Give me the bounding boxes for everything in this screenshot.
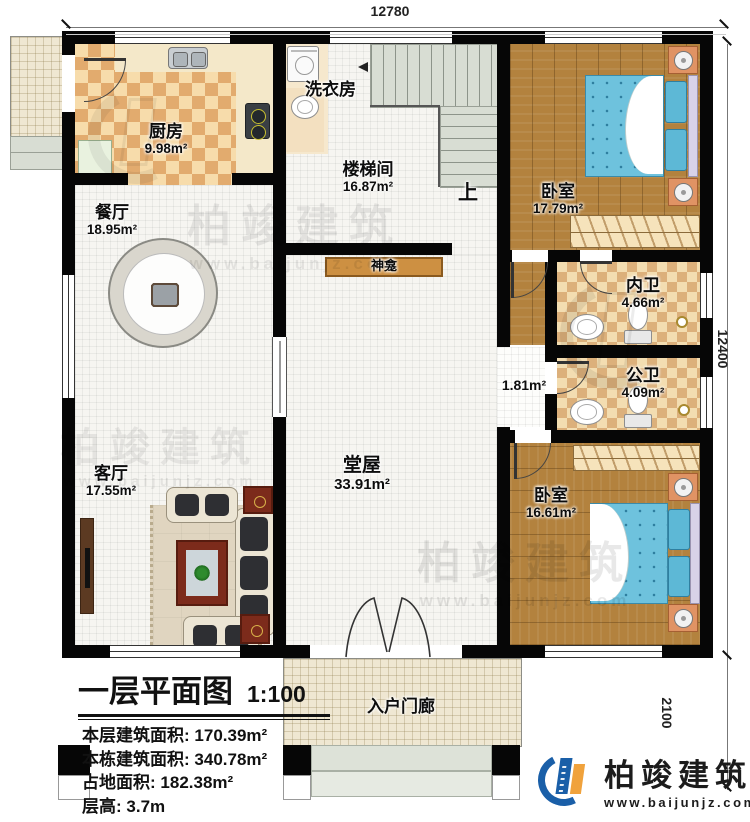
wall-kitchen-bottom xyxy=(75,173,128,185)
plant-icon xyxy=(193,564,211,582)
dimension-top-label: 12780 xyxy=(350,3,430,19)
door-leaf xyxy=(514,443,517,479)
porch-label: 入户门廊 xyxy=(340,697,462,717)
wall-hall-right-lower xyxy=(497,427,510,645)
window-ensuite xyxy=(700,273,713,318)
kitchen-label: 厨房 9.98m² xyxy=(121,122,211,156)
window-stairwell xyxy=(330,31,452,44)
main-hall-floor xyxy=(286,255,497,645)
wall-dining-hall xyxy=(273,417,286,645)
hallway-label: 1.81m² xyxy=(496,378,552,393)
window-living xyxy=(110,645,240,658)
sliding-door xyxy=(272,337,287,417)
tv-icon xyxy=(85,548,90,588)
stairs-direction-arrow xyxy=(358,62,368,72)
wall-hall-right-upper xyxy=(497,262,510,347)
stairs-rail xyxy=(370,105,440,107)
dimension-porch-label: 2100 xyxy=(659,683,675,743)
legend-block: 一层平面图 1:100 本层建筑面积: 170.39m² 本栋建筑面积: 340… xyxy=(78,666,330,818)
nightstand-icon xyxy=(668,473,698,501)
wall-dining-hall xyxy=(273,185,286,337)
wall-hall-top xyxy=(286,243,452,255)
shrine-label: 神龛 xyxy=(325,259,443,274)
window-bedroom2 xyxy=(545,645,662,658)
door-leaf xyxy=(511,262,514,298)
wall-kitchen-bottom xyxy=(232,173,286,185)
stairs-lower-flight xyxy=(440,106,499,188)
wall-kitchen-right xyxy=(273,44,286,185)
coffee-table-icon xyxy=(176,540,228,606)
bed-icon xyxy=(585,75,698,175)
window-bedroom1 xyxy=(545,31,662,44)
window-public-bath xyxy=(700,377,713,428)
door-leaf xyxy=(557,361,589,364)
pillow-icon xyxy=(668,509,690,550)
plan-title: 一层平面图 xyxy=(78,666,233,711)
bed-headboard xyxy=(690,503,700,604)
wardrobe-icon xyxy=(570,215,700,248)
wardrobe-icon xyxy=(573,445,700,471)
main-hall-label: 堂屋 33.91m² xyxy=(312,455,412,493)
stairs-rail xyxy=(438,105,440,187)
legend-underline xyxy=(78,714,330,717)
brand-logo: 柏竣建筑 www.baijunjz.com xyxy=(538,750,750,810)
pillow-icon xyxy=(665,129,687,171)
dimension-right-label: 12400 xyxy=(715,319,731,379)
door-leaf xyxy=(580,261,612,264)
brand-name: 柏竣建筑 xyxy=(604,750,750,795)
stairs-upper-flight xyxy=(370,44,499,108)
window-kitchen xyxy=(115,31,230,44)
nightstand-icon xyxy=(668,46,698,74)
legend-stat-row: 本层建筑面积: 170.39m² xyxy=(82,724,330,748)
door-gap xyxy=(512,250,548,262)
stove-icon xyxy=(245,103,270,139)
dimension-top-line xyxy=(66,27,726,28)
shower-icon xyxy=(678,404,690,416)
dining-chair-icon xyxy=(151,283,179,307)
wall-ensuite-left xyxy=(545,262,557,345)
legend-stat-row: 层高: 3.7m xyxy=(82,795,330,819)
nightstand-icon xyxy=(668,604,698,632)
floor-plan-canvas: 厨房 9.98m² 洗衣房 楼梯间 16.87m² 上 卧室 17.79m² 餐… xyxy=(0,0,750,822)
door-leaf xyxy=(84,58,126,61)
sliding-door-track xyxy=(279,341,281,413)
pillow-icon xyxy=(665,81,687,123)
stairwell-label: 楼梯间 16.87m² xyxy=(318,160,418,194)
bedroom1-label: 卧室 17.79m² xyxy=(513,182,603,216)
side-balcony xyxy=(10,36,69,138)
legend-stat-row: 本栋建筑面积: 340.78m² xyxy=(82,748,330,772)
porch-step xyxy=(311,771,492,797)
balcony-door-gap xyxy=(62,55,75,112)
window-dining xyxy=(62,275,75,398)
kitchen-sink-icon xyxy=(168,47,208,69)
bedroom2-label: 卧室 16.61m² xyxy=(506,486,596,520)
wall-between-baths xyxy=(545,345,713,358)
stairs-up-label: 上 xyxy=(452,182,484,205)
door-gap xyxy=(515,430,551,443)
balcony-step xyxy=(10,152,69,170)
bed-icon xyxy=(590,503,700,602)
brand-website: www.baijunjz.com xyxy=(604,795,750,810)
porch-step xyxy=(311,745,492,771)
tv-cabinet-icon xyxy=(80,518,94,614)
basin-icon xyxy=(570,399,604,425)
ensuite-label: 内卫 4.66m² xyxy=(598,276,688,310)
plan-scale: 1:100 xyxy=(247,681,306,708)
dimension-top-line2 xyxy=(66,34,726,35)
legend-underline2 xyxy=(78,719,330,720)
porch-column xyxy=(492,745,520,775)
pillow-icon xyxy=(668,556,690,597)
laundry-label: 洗衣房 xyxy=(283,80,378,100)
brand-logo-mark xyxy=(538,750,596,808)
wall-stair-bedroom1 xyxy=(497,31,510,250)
legend-stat-row: 占地面积: 182.38m² xyxy=(82,771,330,795)
dining-label: 餐厅 18.95m² xyxy=(67,203,157,237)
side-table-icon xyxy=(240,614,270,644)
shower-icon xyxy=(676,316,688,328)
bed-headboard xyxy=(688,75,698,177)
living-label: 客厅 17.55m² xyxy=(66,464,156,498)
side-table-icon xyxy=(243,486,273,514)
washing-machine-icon xyxy=(287,46,319,82)
sofa-top-icon xyxy=(166,487,238,523)
basin-icon xyxy=(570,314,604,340)
porch-side-block xyxy=(492,775,520,800)
nightstand-icon xyxy=(668,178,698,206)
entrance-double-door xyxy=(338,596,438,658)
public-bath-label: 公卫 4.09m² xyxy=(598,366,688,400)
